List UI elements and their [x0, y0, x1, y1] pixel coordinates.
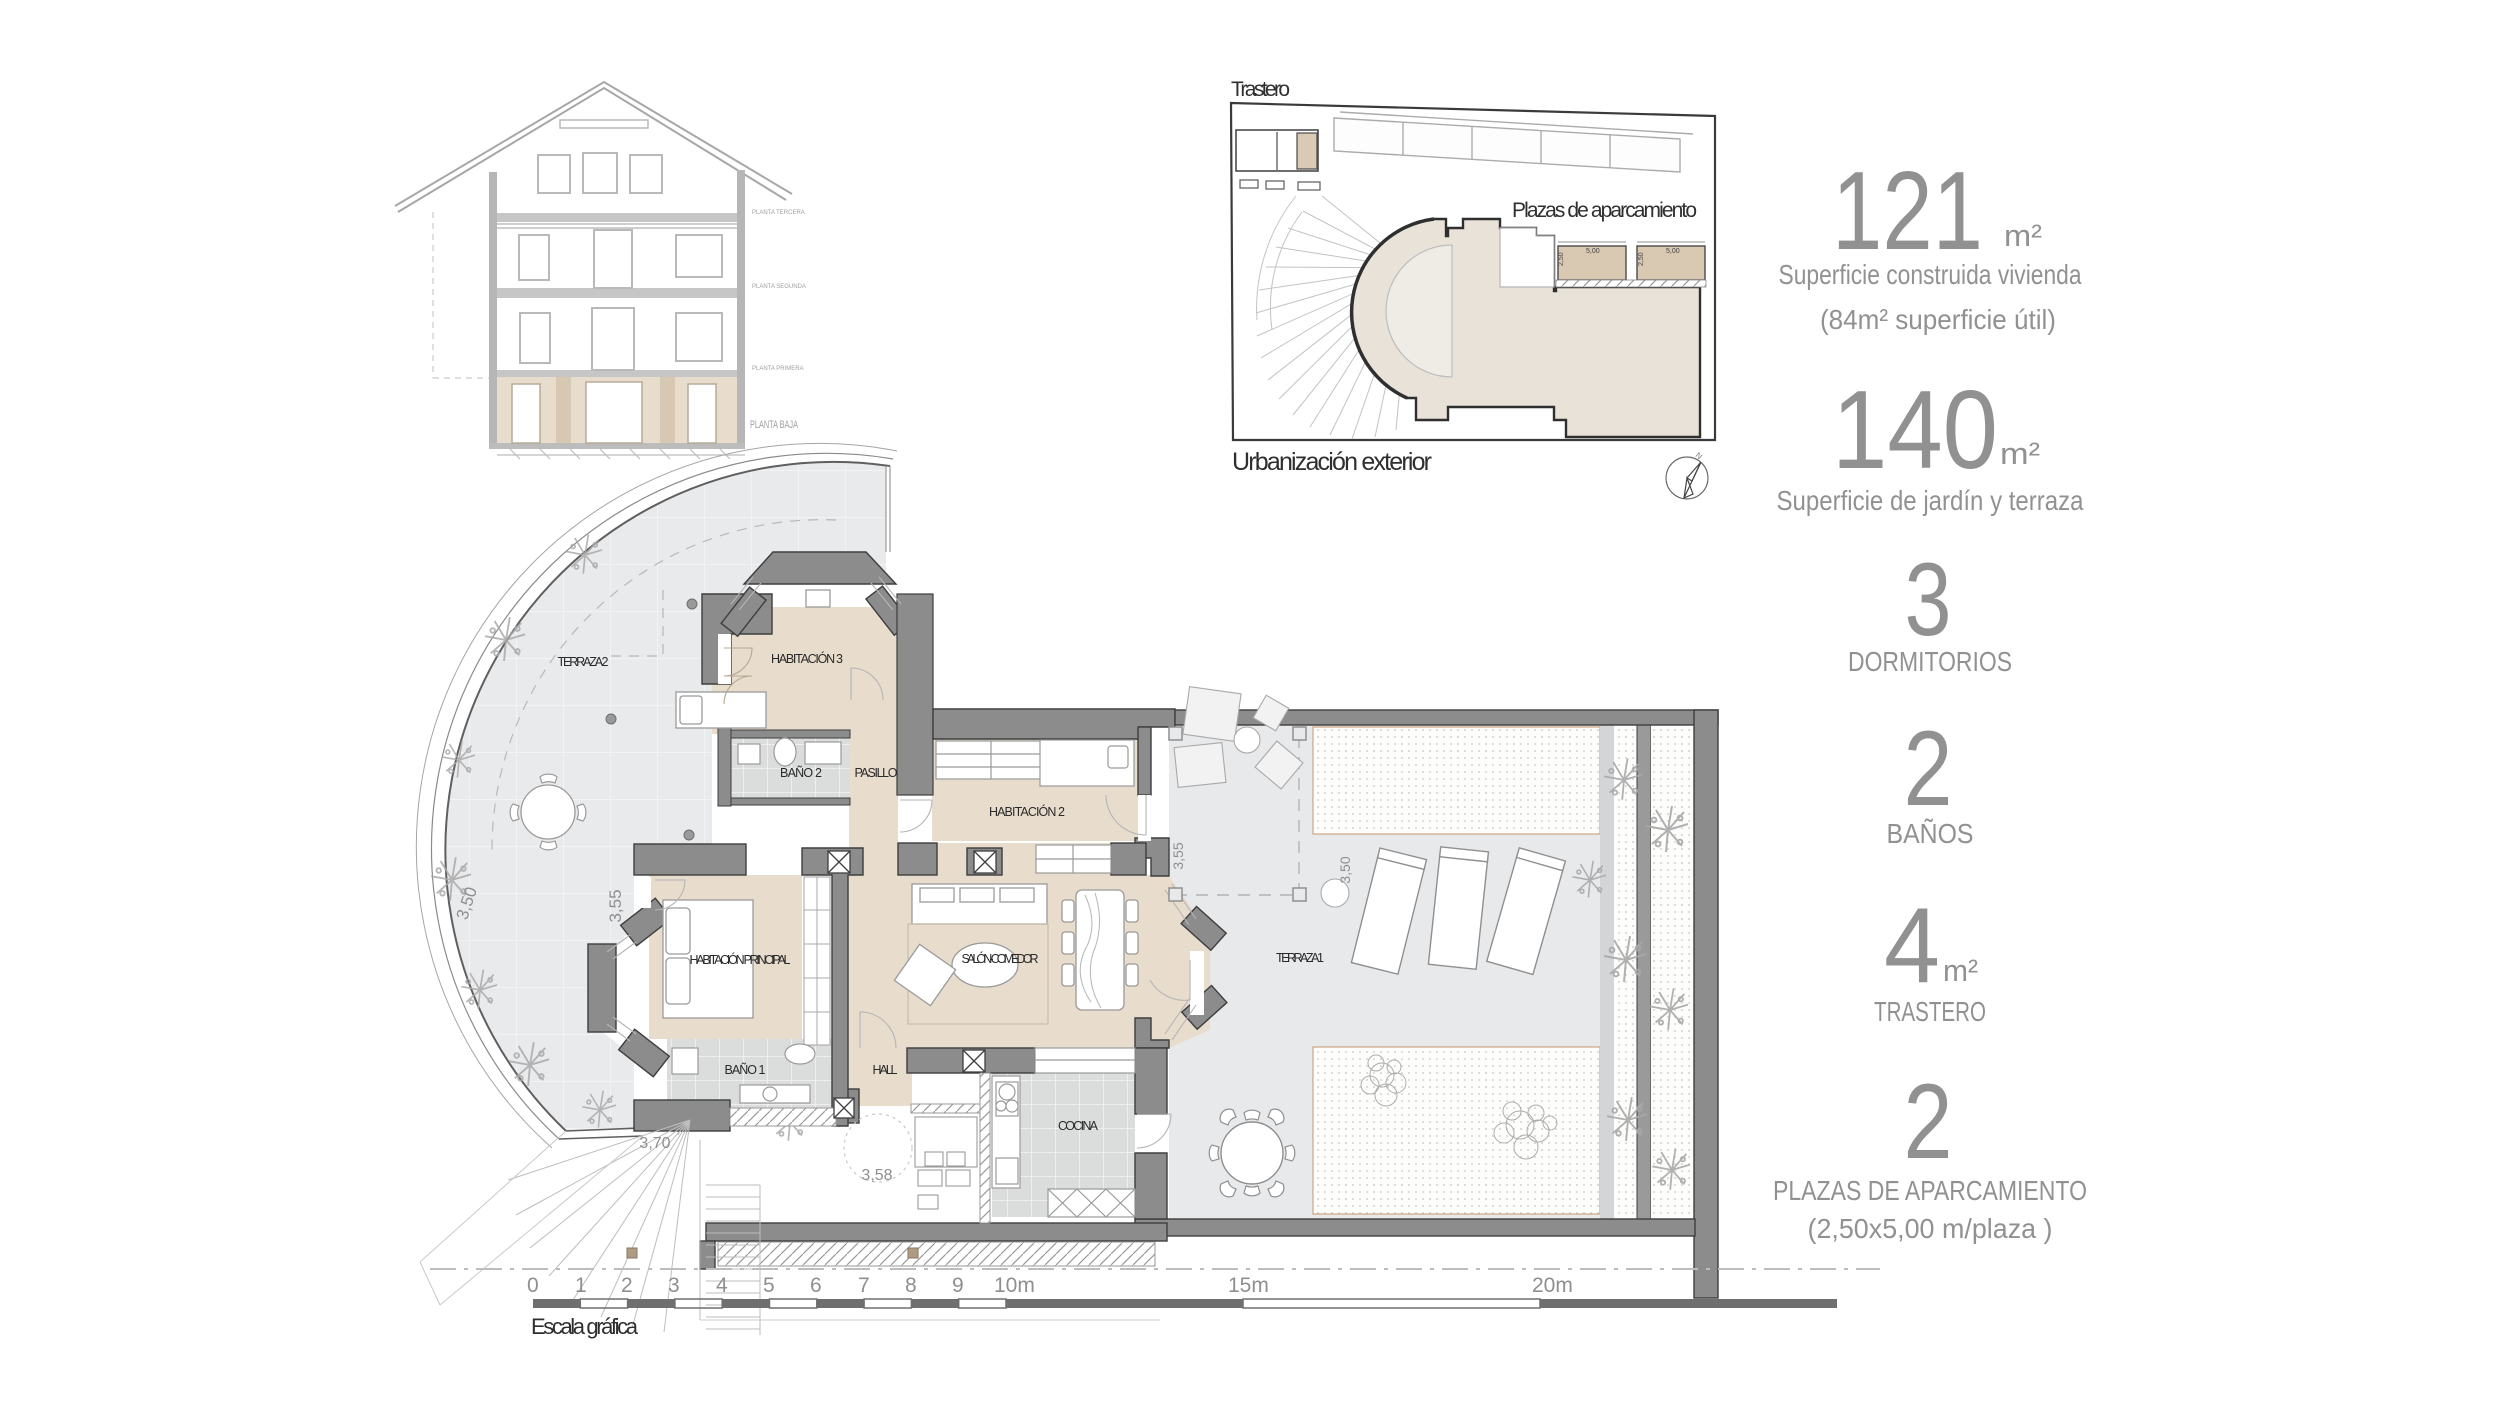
- svg-text:PLANTA TERCERA: PLANTA TERCERA: [752, 210, 805, 216]
- svg-text:m²: m²: [2004, 218, 2042, 253]
- svg-text:15m: 15m: [1228, 1274, 1269, 1297]
- svg-text:HALL: HALL: [873, 1063, 898, 1077]
- svg-text:TERRAZA 1: TERRAZA 1: [1276, 951, 1324, 965]
- svg-text:PLANTA PRIMERA: PLANTA PRIMERA: [752, 366, 804, 372]
- svg-text:9: 9: [952, 1274, 964, 1297]
- svg-text:10m: 10m: [994, 1274, 1035, 1297]
- svg-text:3,50: 3,50: [1337, 856, 1353, 883]
- svg-text:BAÑO 1: BAÑO 1: [725, 1063, 766, 1077]
- svg-text:m²: m²: [1943, 953, 1978, 988]
- svg-text:4: 4: [716, 1274, 728, 1297]
- svg-text:COCINA: COCINA: [1058, 1119, 1099, 1133]
- svg-text:5: 5: [763, 1274, 775, 1297]
- svg-text:3: 3: [1905, 542, 1952, 658]
- svg-text:HABITACIÓN 2: HABITACIÓN 2: [989, 804, 1065, 819]
- svg-text:SALÓN-COMEDOR: SALÓN-COMEDOR: [962, 951, 1039, 966]
- svg-text:(2,50x5,00 m/plaza ): (2,50x5,00 m/plaza ): [1808, 1213, 2053, 1244]
- svg-text:20m: 20m: [1532, 1274, 1573, 1297]
- svg-text:DORMITORIOS: DORMITORIOS: [1848, 646, 2012, 677]
- svg-text:HABITACIÓN 3: HABITACIÓN 3: [771, 651, 843, 666]
- svg-text:3,55: 3,55: [1170, 842, 1186, 869]
- svg-text:m²: m²: [2000, 436, 2040, 471]
- svg-text:5,00: 5,00: [1586, 248, 1600, 255]
- svg-text:4: 4: [1884, 885, 1940, 1005]
- svg-text:8: 8: [905, 1274, 917, 1297]
- svg-text:Trastero: Trastero: [1231, 78, 1290, 101]
- svg-text:6: 6: [810, 1274, 822, 1297]
- svg-text:2: 2: [1904, 1061, 1953, 1181]
- svg-text:3: 3: [668, 1274, 680, 1297]
- svg-text:Plazas de aparcamiento: Plazas de aparcamiento: [1512, 199, 1697, 222]
- svg-text:(84m² superficie útil): (84m² superficie útil): [1820, 304, 2056, 335]
- svg-text:3,58: 3,58: [861, 1167, 892, 1184]
- svg-text:2,50: 2,50: [1638, 252, 1645, 266]
- svg-text:TRASTERO: TRASTERO: [1874, 996, 1986, 1027]
- svg-text:121: 121: [1832, 149, 1983, 273]
- svg-text:PLANTA SEGUNDA: PLANTA SEGUNDA: [752, 284, 806, 290]
- svg-text:Escala gráfica: Escala gráfica: [531, 1314, 639, 1339]
- svg-text:140: 140: [1832, 368, 1998, 492]
- svg-text:Superficie de jardín y terraza: Superficie de jardín y terraza: [1777, 485, 2084, 516]
- svg-text:0: 0: [527, 1274, 539, 1297]
- svg-text:5,00: 5,00: [1666, 248, 1680, 255]
- svg-text:BAÑO 2: BAÑO 2: [780, 766, 822, 780]
- svg-text:2: 2: [1904, 708, 1953, 828]
- svg-text:PASILLO: PASILLO: [855, 766, 898, 780]
- svg-text:2,50: 2,50: [1558, 252, 1565, 266]
- svg-text:7: 7: [858, 1274, 870, 1297]
- svg-text:2: 2: [621, 1274, 633, 1297]
- svg-text:BAÑOS: BAÑOS: [1887, 818, 1974, 849]
- svg-text:HABITACIÓN PRINCIPAL: HABITACIÓN PRINCIPAL: [690, 952, 791, 967]
- svg-text:PLANTA BAJA: PLANTA BAJA: [750, 419, 798, 431]
- svg-text:Urbanización exterior: Urbanización exterior: [1232, 448, 1432, 476]
- svg-text:1: 1: [575, 1274, 587, 1297]
- svg-text:PLAZAS DE APARCAMIENTO: PLAZAS DE APARCAMIENTO: [1773, 1175, 2087, 1206]
- svg-text:TERRAZA 2: TERRAZA 2: [558, 655, 609, 669]
- svg-text:N: N: [1694, 451, 1704, 462]
- svg-text:Superficie construida vivienda: Superficie construida vivienda: [1779, 259, 2082, 290]
- svg-text:3,55: 3,55: [606, 889, 625, 922]
- svg-text:3,70: 3,70: [639, 1135, 670, 1152]
